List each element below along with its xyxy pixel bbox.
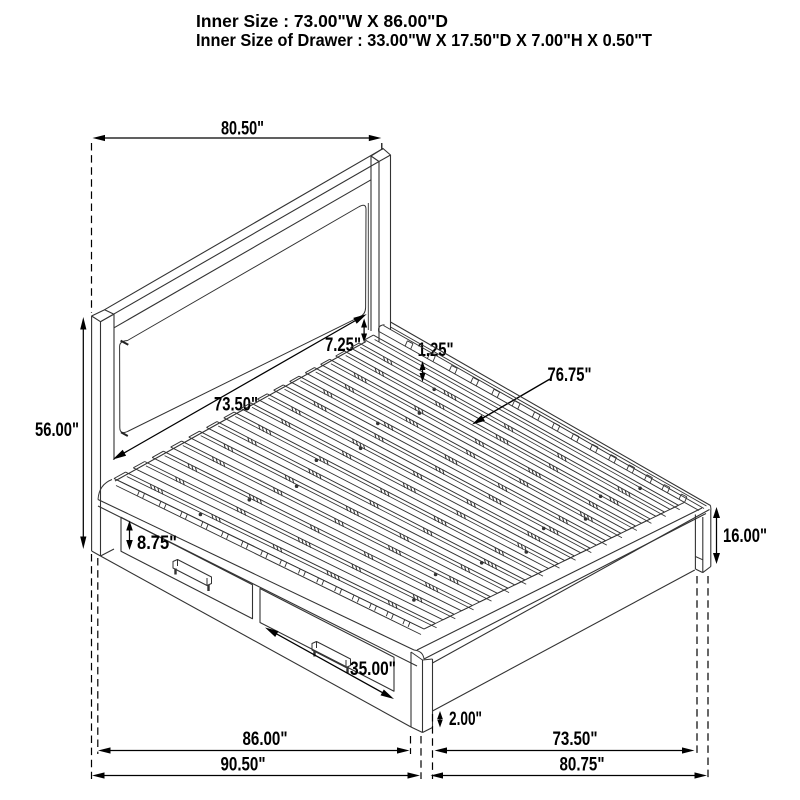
svg-text:Inner Size : 73.00"W X 86.00"D: Inner Size : 73.00"W X 86.00"D <box>196 11 448 31</box>
svg-text:73.50": 73.50" <box>553 729 598 750</box>
svg-text:8.75": 8.75" <box>137 533 177 554</box>
svg-text:76.75": 76.75" <box>548 365 592 386</box>
svg-text:16.00": 16.00" <box>723 526 767 547</box>
svg-text:80.75": 80.75" <box>560 755 605 776</box>
svg-text:86.00": 86.00" <box>243 729 288 750</box>
svg-text:90.50": 90.50" <box>221 755 266 776</box>
svg-text:1.25": 1.25" <box>418 340 454 361</box>
svg-text:80.50": 80.50" <box>221 119 264 140</box>
svg-text:2.00": 2.00" <box>449 709 482 730</box>
svg-text:Inner Size of Drawer : 33.00"W: Inner Size of Drawer : 33.00"W X 17.50"D… <box>196 30 652 50</box>
svg-text:7.25": 7.25" <box>325 335 361 356</box>
svg-text:56.00": 56.00" <box>35 420 79 441</box>
svg-text:73.50": 73.50" <box>214 395 258 416</box>
svg-text:35.00": 35.00" <box>350 659 396 680</box>
